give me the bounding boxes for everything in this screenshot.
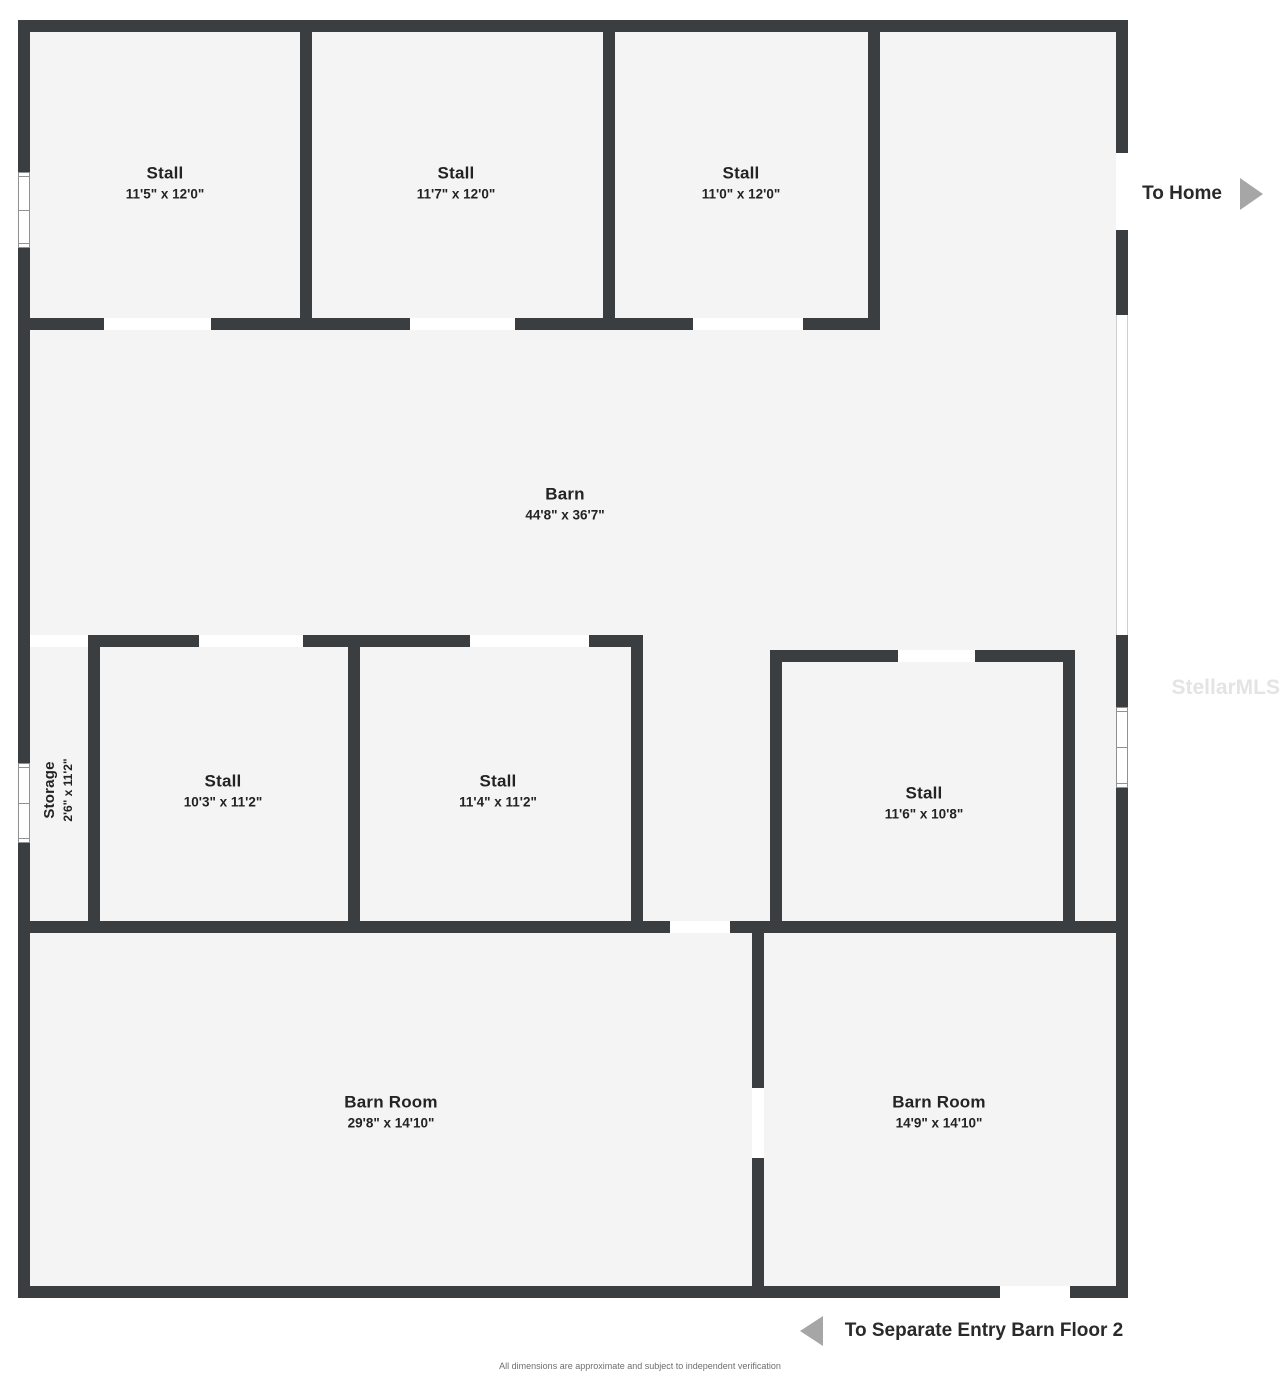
- room-dims: 11'6" x 10'8": [885, 805, 964, 823]
- door-opening-corridor-to-barnrooms: [670, 921, 730, 933]
- door-opening-stall4: [199, 635, 303, 647]
- room-label-stall-mid-center: Stall 11'4" x 11'2": [459, 770, 537, 811]
- open-side-right: [1116, 315, 1128, 635]
- door-opening-stall2: [410, 318, 515, 330]
- room-name: Stall: [126, 162, 205, 185]
- window-pane-line: [1117, 711, 1127, 712]
- door-opening-stall1: [104, 318, 211, 330]
- window-symbol-right: [1116, 707, 1128, 788]
- wall-exterior-bottom: [18, 1286, 1128, 1298]
- room-name: Stall: [184, 770, 263, 793]
- door-opening-between-barnrooms: [752, 1088, 764, 1158]
- wall-stall6-left: [770, 650, 782, 933]
- room-label-barnroom-left: Barn Room 29'8" x 14'10": [344, 1091, 437, 1132]
- window-pane-line: [19, 767, 29, 768]
- room-label-stall-top-right: Stall 11'0" x 12'0": [702, 162, 781, 203]
- door-opening-to-home: [1116, 153, 1128, 230]
- door-opening-storage: [30, 635, 88, 647]
- window-pane-line: [19, 803, 29, 804]
- arrow-left-icon: [800, 1316, 823, 1346]
- room-name: Barn: [525, 483, 604, 506]
- wall-stall1-stall2-divider: [300, 32, 312, 330]
- room-name: Stall: [459, 770, 537, 793]
- door-opening-stall6: [898, 650, 975, 662]
- room-label-barnroom-right: Barn Room 14'9" x 14'10": [892, 1091, 985, 1132]
- watermark: StellarMLS: [1171, 676, 1280, 700]
- wall-stall3-right: [868, 32, 880, 330]
- door-opening-stall3: [693, 318, 803, 330]
- wall-stall4-stall5-divider: [348, 635, 360, 933]
- room-label-stall-top-middle: Stall 11'7" x 12'0": [417, 162, 496, 203]
- room-dims: 11'7" x 12'0": [417, 185, 496, 203]
- wall-stall5-right: [631, 635, 643, 933]
- window-pane-line: [1117, 747, 1127, 748]
- window-symbol-left-top: [18, 172, 30, 248]
- door-opening-stall5: [470, 635, 589, 647]
- wall-exterior-top: [18, 20, 1128, 32]
- room-dims: 29'8" x 14'10": [344, 1114, 437, 1132]
- room-dims: 11'4" x 11'2": [459, 793, 537, 811]
- room-dims: 14'9" x 14'10": [892, 1114, 985, 1132]
- exit-label-to-home: To Home: [1142, 183, 1222, 205]
- window-pane-line: [19, 176, 29, 177]
- window-pane-line: [19, 838, 29, 839]
- floor-plan: Stall 11'5" x 12'0" Stall 11'7" x 12'0" …: [0, 0, 1280, 1382]
- window-pane-line: [19, 243, 29, 244]
- room-dims: 10'3" x 11'2": [184, 793, 263, 811]
- wall-stall2-stall3-divider: [603, 32, 615, 330]
- room-dims: 44'8" x 36'7": [525, 506, 604, 524]
- room-label-storage: Storage 2'6" x 11'2": [40, 758, 76, 821]
- wall-storage-divider: [88, 635, 100, 933]
- exit-label-separate-entry: To Separate Entry Barn Floor 2: [845, 1320, 1123, 1342]
- room-dims: 11'0" x 12'0": [702, 185, 781, 203]
- wall-middle-band-bottom: [30, 921, 1116, 933]
- arrow-right-icon: [1240, 178, 1263, 210]
- wall-stall6-right: [1063, 650, 1075, 933]
- window-symbol-left-storage: [18, 763, 30, 843]
- room-label-stall-mid-left: Stall 10'3" x 11'2": [184, 770, 263, 811]
- room-name: Stall: [885, 782, 964, 805]
- room-name: Stall: [702, 162, 781, 185]
- room-name: Storage: [40, 758, 60, 821]
- room-name: Barn Room: [892, 1091, 985, 1114]
- room-name: Barn Room: [344, 1091, 437, 1114]
- room-dims: 11'5" x 12'0": [126, 185, 205, 203]
- disclaimer-text: All dimensions are approximate and subje…: [499, 1361, 781, 1371]
- room-name: Stall: [417, 162, 496, 185]
- room-label-barn: Barn 44'8" x 36'7": [525, 483, 604, 524]
- window-pane-line: [19, 210, 29, 211]
- room-dims: 2'6" x 11'2": [60, 758, 76, 821]
- room-label-stall-top-left: Stall 11'5" x 12'0": [126, 162, 205, 203]
- room-label-stall-mid-right: Stall 11'6" x 10'8": [885, 782, 964, 823]
- window-pane-line: [1117, 783, 1127, 784]
- door-opening-separate-entry: [1000, 1286, 1070, 1298]
